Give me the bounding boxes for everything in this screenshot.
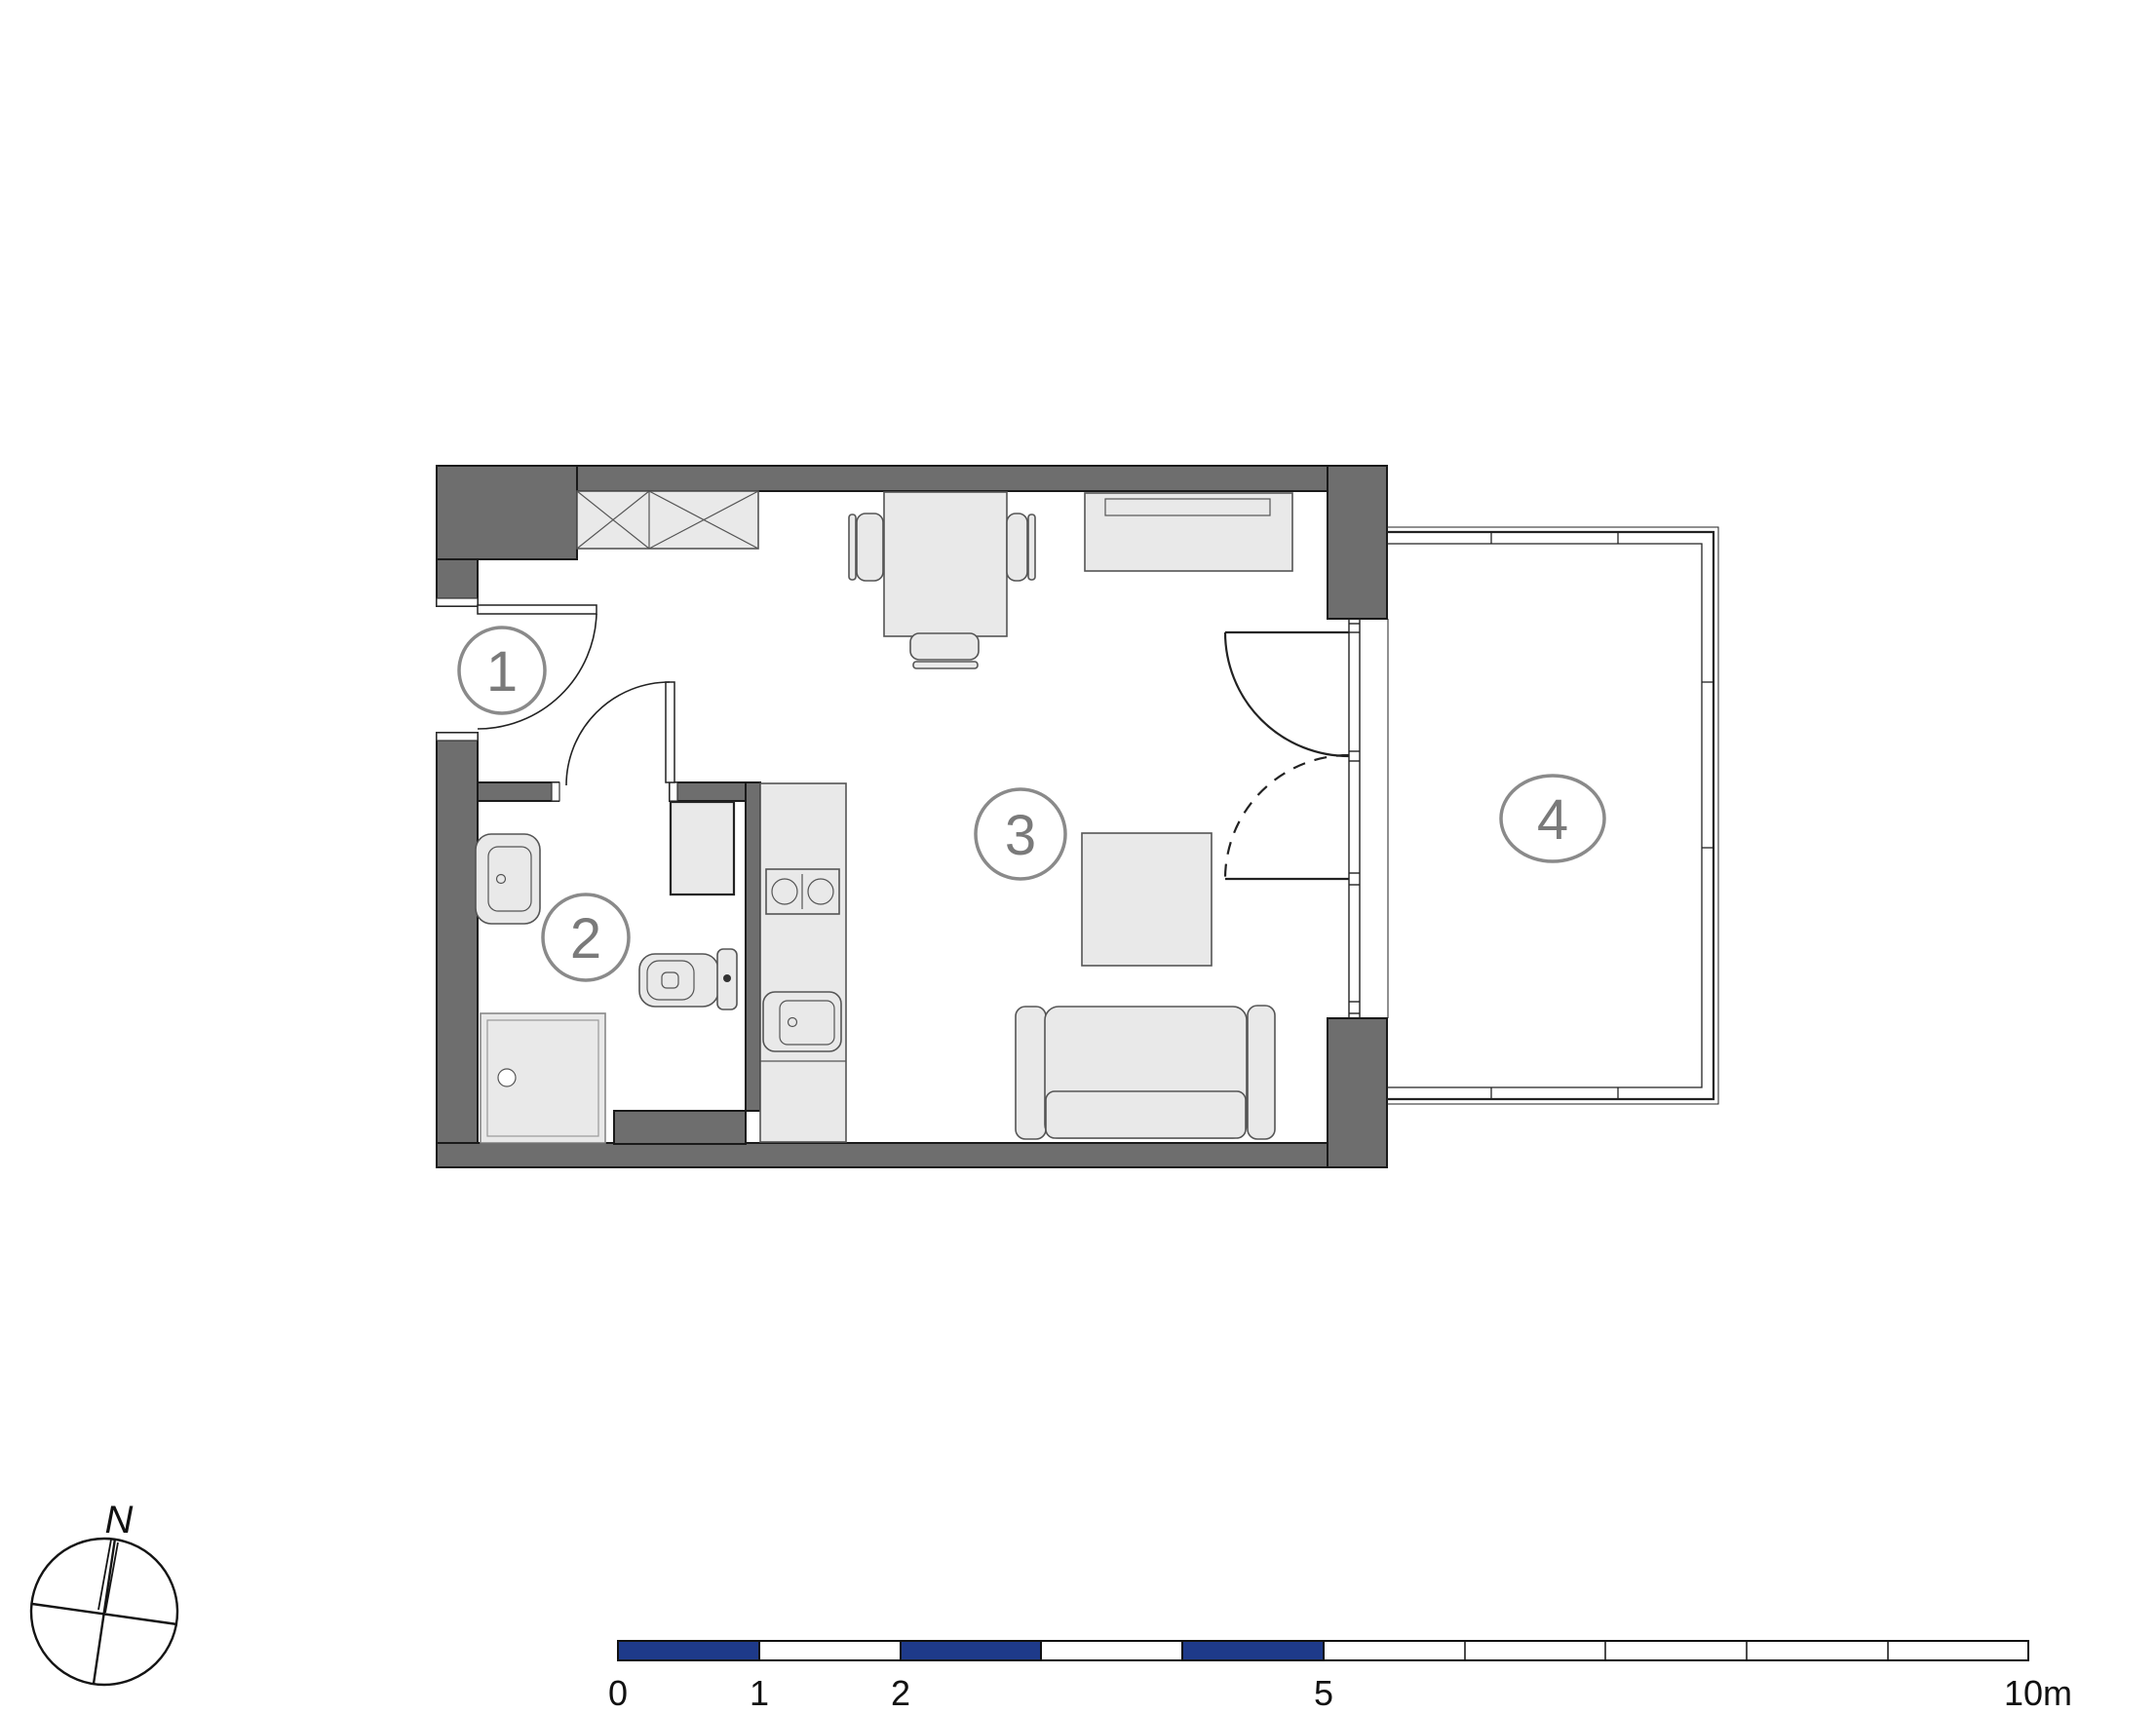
scale-label-10m: 10m xyxy=(2004,1673,2072,1713)
washing-machine xyxy=(671,802,734,895)
wall-bottom xyxy=(437,1143,1387,1167)
room-label-hall: 1 xyxy=(486,640,518,704)
sideboard xyxy=(1085,493,1292,571)
washbasin xyxy=(476,834,540,924)
chair-left-back xyxy=(849,514,856,580)
scale-label-0: 0 xyxy=(608,1673,628,1713)
room-label-living-room: 3 xyxy=(1005,804,1036,867)
wall-corner-block xyxy=(437,466,577,559)
room-label-balcony: 4 xyxy=(1537,788,1568,852)
bathroom-door-jamb-right xyxy=(670,782,677,801)
chair-right-back xyxy=(1028,514,1035,580)
sideboard-body xyxy=(1085,493,1292,571)
dining-set xyxy=(849,492,1035,668)
wall-right-upper xyxy=(1328,466,1387,619)
wall-left-lower xyxy=(437,733,478,1167)
scale-bar-segment-4-5 xyxy=(1182,1641,1324,1660)
chair-bottom-back xyxy=(913,662,978,668)
scale-label-1: 1 xyxy=(750,1673,769,1713)
kitchen xyxy=(760,783,846,1142)
bathroom-door-swing-arc xyxy=(566,682,670,785)
wardrobe xyxy=(577,491,758,549)
compass-needle-line xyxy=(105,1542,118,1613)
compass-axis-vertical xyxy=(94,1539,115,1684)
room-labels: 1 2 3 4 xyxy=(459,628,1604,980)
chair-bottom-seat xyxy=(910,633,979,660)
north-compass-icon: N xyxy=(31,1499,177,1685)
scale-bar: 0 1 2 5 10m xyxy=(608,1641,2072,1713)
scale-bar-segment-2-3 xyxy=(901,1641,1041,1660)
room-label-bathroom: 2 xyxy=(570,907,601,971)
wall-bathroom-partition-left xyxy=(478,782,558,801)
sofa-armrest-right xyxy=(1248,1006,1275,1139)
floor-plan-page: 1 2 3 4 N 0 1 2 xyxy=(0,0,2156,1713)
toilet-flush-button xyxy=(723,974,731,982)
sofa-seat-cushion xyxy=(1046,1091,1246,1138)
chair-right-seat xyxy=(1007,514,1027,581)
balcony-door-swing-arc-dashed xyxy=(1225,755,1349,879)
wall-bathroom-bottom-chunk xyxy=(614,1111,746,1144)
wall-top xyxy=(437,466,1387,491)
balcony-door-swing-arc-solid xyxy=(1225,632,1349,756)
compass-north-label: N xyxy=(105,1499,134,1542)
sofa xyxy=(1016,1006,1275,1139)
entry-door-jamb-bottom xyxy=(437,733,478,741)
bathroom-door-leaf xyxy=(666,682,674,782)
chair-left-seat xyxy=(857,514,883,581)
kitchen-counter xyxy=(760,783,846,1142)
bathroom-door-jamb-left xyxy=(552,782,559,801)
dining-table xyxy=(884,492,1007,636)
scale-label-2: 2 xyxy=(891,1673,910,1713)
shower-drain xyxy=(498,1069,516,1086)
entry-door-leaf xyxy=(478,605,597,614)
balcony-window-frame xyxy=(1349,619,1388,1018)
sofa-armrest-left xyxy=(1016,1007,1046,1139)
scale-bar-segment-0-1 xyxy=(618,1641,759,1660)
furniture xyxy=(476,491,1292,1143)
wardrobe-body xyxy=(577,491,758,549)
wall-right-lower xyxy=(1328,1018,1387,1167)
floor-plan-drawing: 1 2 3 4 N 0 1 2 xyxy=(0,0,2156,1713)
entry-door-jamb-top xyxy=(437,598,478,606)
coffee-table xyxy=(1082,833,1212,966)
scale-label-5: 5 xyxy=(1314,1673,1333,1713)
wall-kitchen-partition xyxy=(746,782,760,1111)
